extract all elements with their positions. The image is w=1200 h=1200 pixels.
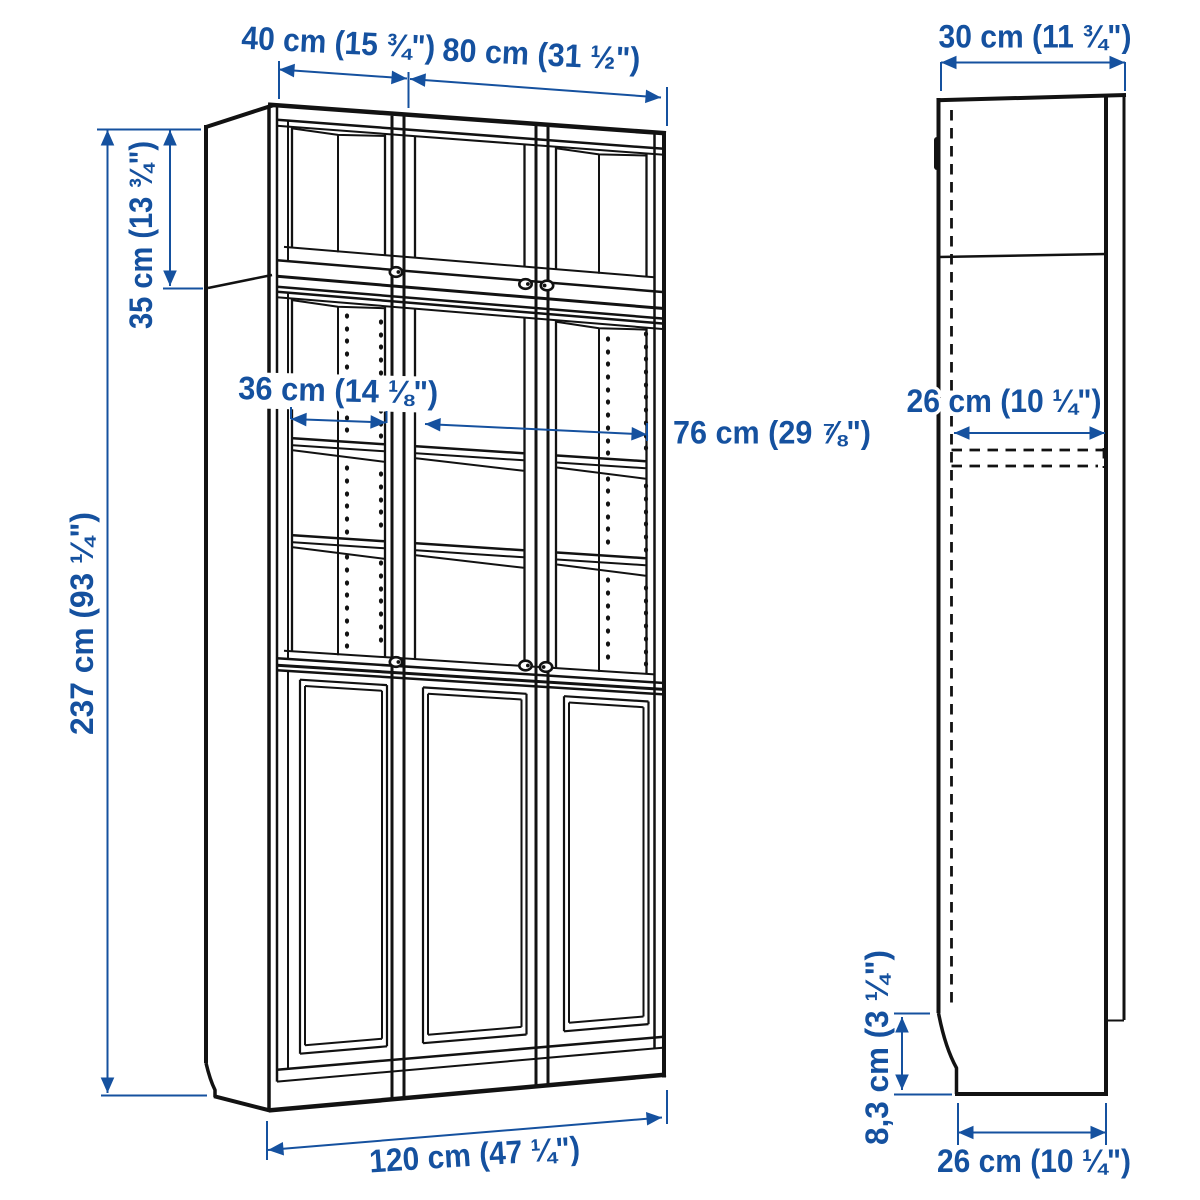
svg-text:35 cm (13 ¾"): 35 cm (13 ¾") [123, 141, 159, 329]
svg-text:26 cm (10 ¼"): 26 cm (10 ¼") [907, 383, 1102, 419]
svg-text:237 cm (93 ¼"): 237 cm (93 ¼") [64, 512, 100, 735]
svg-text:8,3 cm (3 ¼"): 8,3 cm (3 ¼") [859, 950, 895, 1145]
svg-text:26 cm (10 ¼"): 26 cm (10 ¼") [937, 1143, 1131, 1179]
svg-text:76 cm (29 ⅞"): 76 cm (29 ⅞") [673, 415, 871, 451]
svg-text:36 cm (14 ⅛"): 36 cm (14 ⅛") [238, 370, 439, 411]
svg-text:30 cm (11 ¾"): 30 cm (11 ¾") [939, 18, 1132, 54]
